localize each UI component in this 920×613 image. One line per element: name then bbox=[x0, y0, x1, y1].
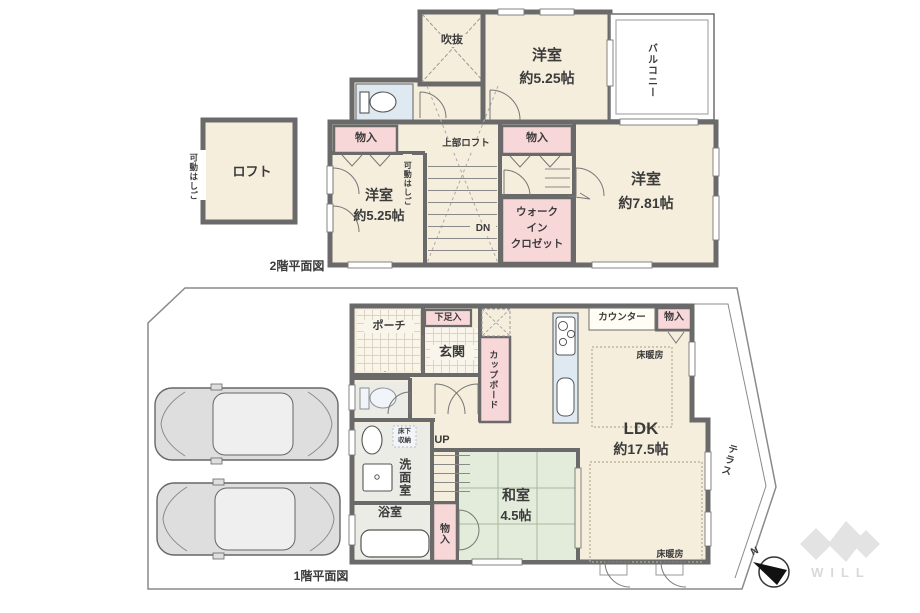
room-top-size: 約5.25帖 bbox=[495, 70, 599, 86]
brand-logo-text: WILL bbox=[798, 566, 884, 581]
room-right-name: 洋室 bbox=[610, 171, 682, 188]
counter-label: カウンター bbox=[592, 313, 652, 324]
storage-left-label: 物入 bbox=[336, 132, 396, 145]
entrance-label: 玄関 bbox=[430, 345, 474, 360]
cupboard-label: カップボード bbox=[488, 341, 498, 419]
room-left-name: 洋室 bbox=[336, 187, 422, 203]
upper-loft-label: 上部ロフト bbox=[436, 139, 496, 150]
storage-top-label: 物入 bbox=[659, 312, 689, 324]
wic-label-line2: イン bbox=[506, 222, 568, 234]
washitsu-size: 4.5帖 bbox=[490, 509, 542, 524]
floor-heating-bottom-label: 床暖房 bbox=[650, 549, 690, 559]
stair-ladder-label: 可動はしご bbox=[403, 154, 412, 212]
porch-label: ポーチ bbox=[364, 320, 414, 333]
washroom-label: 洗面室 bbox=[397, 452, 411, 502]
ldk-size: 約17.5帖 bbox=[600, 441, 682, 457]
storage-mid-label: 物入 bbox=[506, 132, 568, 145]
void-label: 吹抜 bbox=[430, 34, 474, 47]
storage-washitsu-label: 物入 bbox=[437, 514, 449, 554]
loft-label: ロフト bbox=[222, 165, 282, 180]
room-left-size: 約5.25帖 bbox=[332, 209, 426, 224]
brand-logo-icon bbox=[800, 521, 880, 562]
staircase-2f bbox=[428, 156, 497, 262]
wic-label-line1: ウォーク bbox=[506, 206, 568, 218]
ldk-name: LDK bbox=[610, 419, 672, 439]
underfloor-storage-line2: 収納 bbox=[394, 437, 415, 444]
floorplan-geometry bbox=[0, 0, 920, 613]
underfloor-storage-line1: 床下 bbox=[394, 428, 415, 435]
balcony-label: バルコニー bbox=[645, 28, 657, 112]
stairs-down-label: DN bbox=[470, 223, 496, 235]
kitchen-counter bbox=[553, 313, 578, 423]
car-icon bbox=[155, 384, 338, 464]
toilet-icon bbox=[360, 92, 396, 113]
stairs-up-label: UP bbox=[428, 434, 456, 447]
washitsu-name: 和室 bbox=[492, 487, 540, 503]
wic-label-line3: クロゼット bbox=[506, 238, 568, 250]
floor2-caption: 2階平面図 bbox=[264, 260, 330, 274]
room-right-size: 約7.81帖 bbox=[604, 195, 688, 211]
staircase-1f bbox=[434, 453, 470, 500]
bathtub-icon bbox=[361, 530, 429, 557]
tatami-grid bbox=[459, 452, 576, 560]
loft-ladder-label: 可動はしご bbox=[188, 146, 198, 208]
shoe-storage-label: 下足入 bbox=[426, 312, 470, 322]
floor1-caption: 1階平面図 bbox=[288, 570, 354, 584]
car-icon bbox=[157, 479, 340, 559]
bathroom-label: 浴室 bbox=[368, 506, 412, 520]
floorplan-canvas: ロフト 可動はしご 吹抜 洋室 約5.25帖 バルコニー 物入 上部ロフト 可動… bbox=[0, 0, 920, 613]
floor-heating-top-label: 床暖房 bbox=[630, 350, 670, 360]
compass-icon bbox=[753, 557, 789, 587]
room-top-name: 洋室 bbox=[495, 47, 599, 64]
